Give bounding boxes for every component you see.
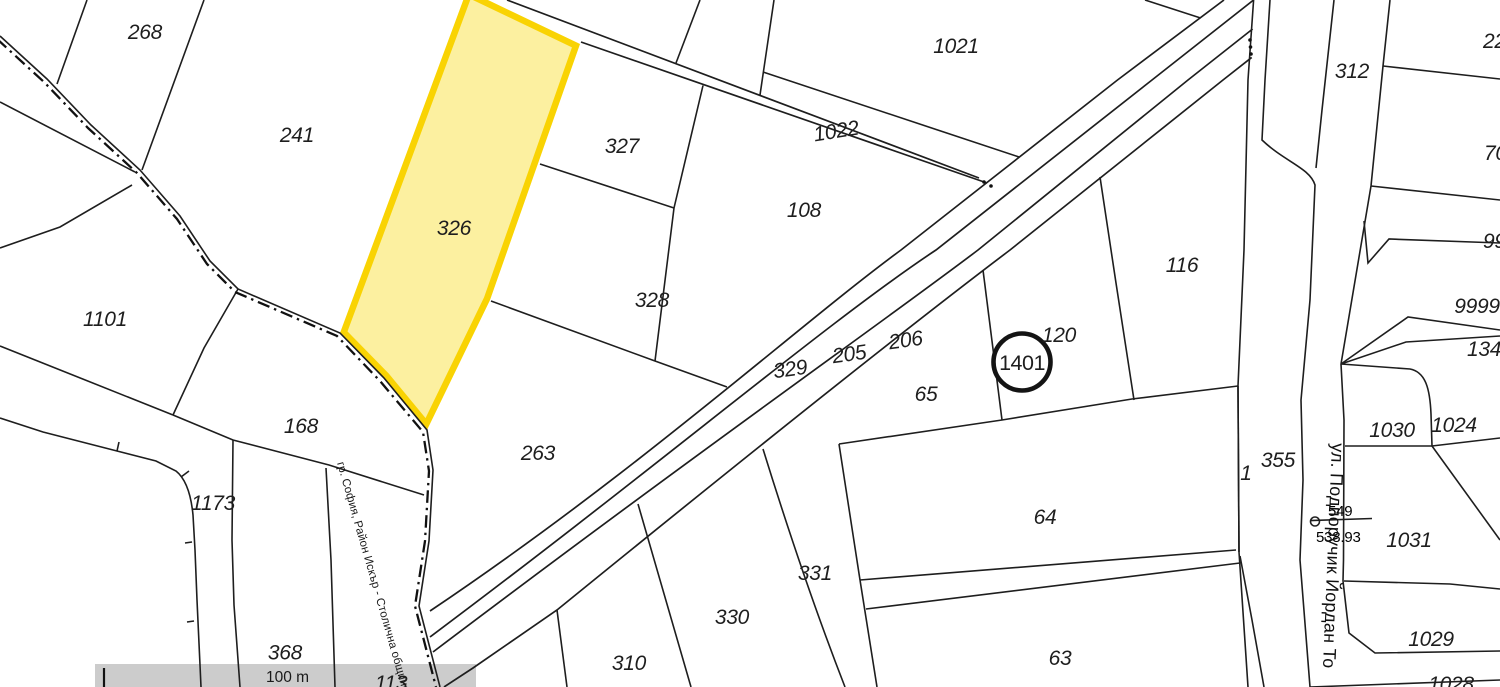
svg-text:1173: 1173 — [191, 492, 236, 515]
svg-text:1401: 1401 — [999, 351, 1045, 375]
svg-text:64: 64 — [1034, 506, 1057, 529]
svg-text:120: 120 — [1042, 324, 1077, 347]
svg-text:1031: 1031 — [1386, 529, 1432, 552]
svg-text:65: 65 — [915, 383, 938, 406]
svg-text:263: 263 — [520, 442, 556, 465]
svg-text:310: 310 — [612, 652, 647, 675]
svg-text:1101: 1101 — [83, 308, 127, 331]
svg-text:99: 99 — [1483, 230, 1500, 253]
svg-text:1024: 1024 — [1431, 414, 1477, 437]
svg-text:329: 329 — [772, 356, 810, 384]
svg-text:355: 355 — [1261, 449, 1296, 472]
svg-text:70: 70 — [1484, 142, 1500, 165]
svg-text:328: 328 — [635, 289, 670, 312]
svg-text:331: 331 — [798, 562, 832, 585]
svg-text:205: 205 — [830, 341, 869, 369]
svg-text:326: 326 — [437, 217, 472, 240]
svg-text:100 m: 100 m — [266, 669, 309, 686]
svg-text:1028: 1028 — [1428, 673, 1474, 687]
svg-text:9999: 9999 — [1454, 295, 1500, 318]
svg-text:368: 368 — [268, 642, 303, 665]
svg-text:1029: 1029 — [1408, 628, 1454, 651]
svg-text:168: 168 — [284, 415, 319, 438]
svg-text:134: 134 — [1467, 338, 1500, 361]
svg-text:108: 108 — [787, 199, 822, 222]
svg-text:330: 330 — [715, 606, 750, 629]
svg-text:63: 63 — [1049, 647, 1072, 670]
svg-text:22: 22 — [1482, 30, 1500, 53]
svg-text:312: 312 — [1335, 60, 1370, 83]
svg-text:1021: 1021 — [933, 35, 979, 58]
svg-text:1030: 1030 — [1369, 419, 1415, 442]
svg-text:327: 327 — [605, 135, 641, 158]
svg-text:241: 241 — [279, 124, 314, 147]
svg-text:1: 1 — [1240, 462, 1251, 485]
svg-text:268: 268 — [127, 21, 163, 44]
svg-text:116: 116 — [1166, 254, 1199, 277]
svg-text:206: 206 — [886, 327, 925, 355]
